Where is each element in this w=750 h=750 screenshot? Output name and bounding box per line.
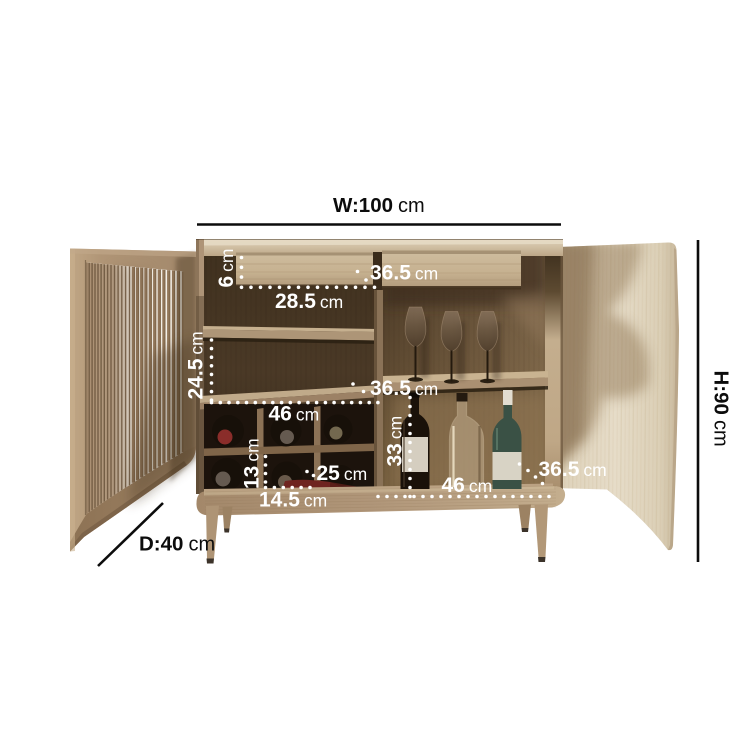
svg-text:36.5cm: 36.5cm [370,377,438,400]
svg-text:6cm: 6cm [215,248,238,287]
svg-text:W:100cm: W:100cm [333,194,425,217]
svg-text:24.5cm: 24.5cm [185,331,208,399]
svg-text:36.5cm: 36.5cm [539,458,607,481]
svg-text:14.5cm: 14.5cm [259,489,327,512]
svg-text:D:40cm: D:40cm [139,533,215,556]
svg-text:28.5cm: 28.5cm [275,290,343,313]
svg-text:36.5cm: 36.5cm [370,262,438,285]
svg-text:H:90cm: H:90cm [710,371,733,447]
